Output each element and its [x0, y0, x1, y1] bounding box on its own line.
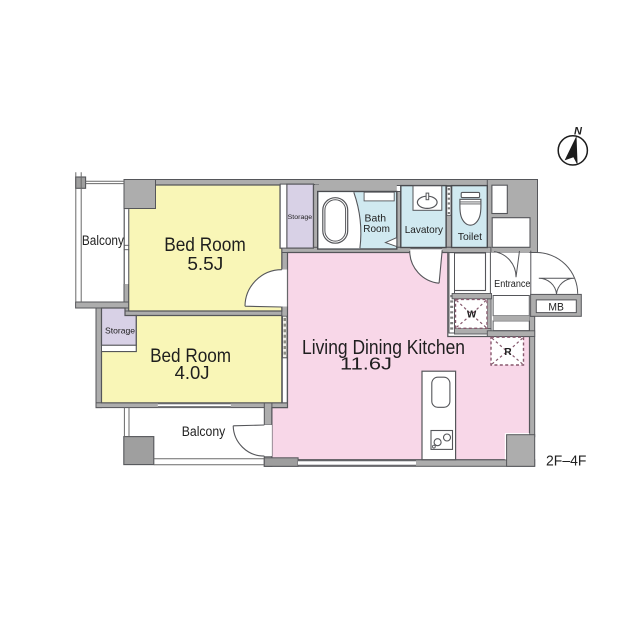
svg-text:11.6J: 11.6J — [340, 353, 392, 373]
svg-text:4.0J: 4.0J — [175, 362, 210, 383]
svg-text:Balcony: Balcony — [82, 233, 124, 248]
svg-text:Toilet: Toilet — [458, 232, 482, 243]
svg-text:N: N — [574, 126, 583, 138]
svg-text:W: W — [467, 310, 477, 321]
svg-text:R: R — [504, 347, 512, 358]
svg-text:Bath: Bath — [365, 214, 387, 225]
svg-text:Storage: Storage — [105, 327, 135, 336]
svg-text:MB: MB — [548, 301, 564, 313]
svg-text:2F–4F: 2F–4F — [546, 453, 586, 469]
svg-text:Entrance: Entrance — [494, 279, 530, 290]
svg-text:Lavatory: Lavatory — [405, 225, 444, 236]
svg-text:Room: Room — [363, 224, 390, 235]
svg-text:Balcony: Balcony — [182, 424, 226, 439]
svg-text:5.5J: 5.5J — [187, 253, 223, 274]
svg-text:Storage: Storage — [288, 214, 313, 221]
